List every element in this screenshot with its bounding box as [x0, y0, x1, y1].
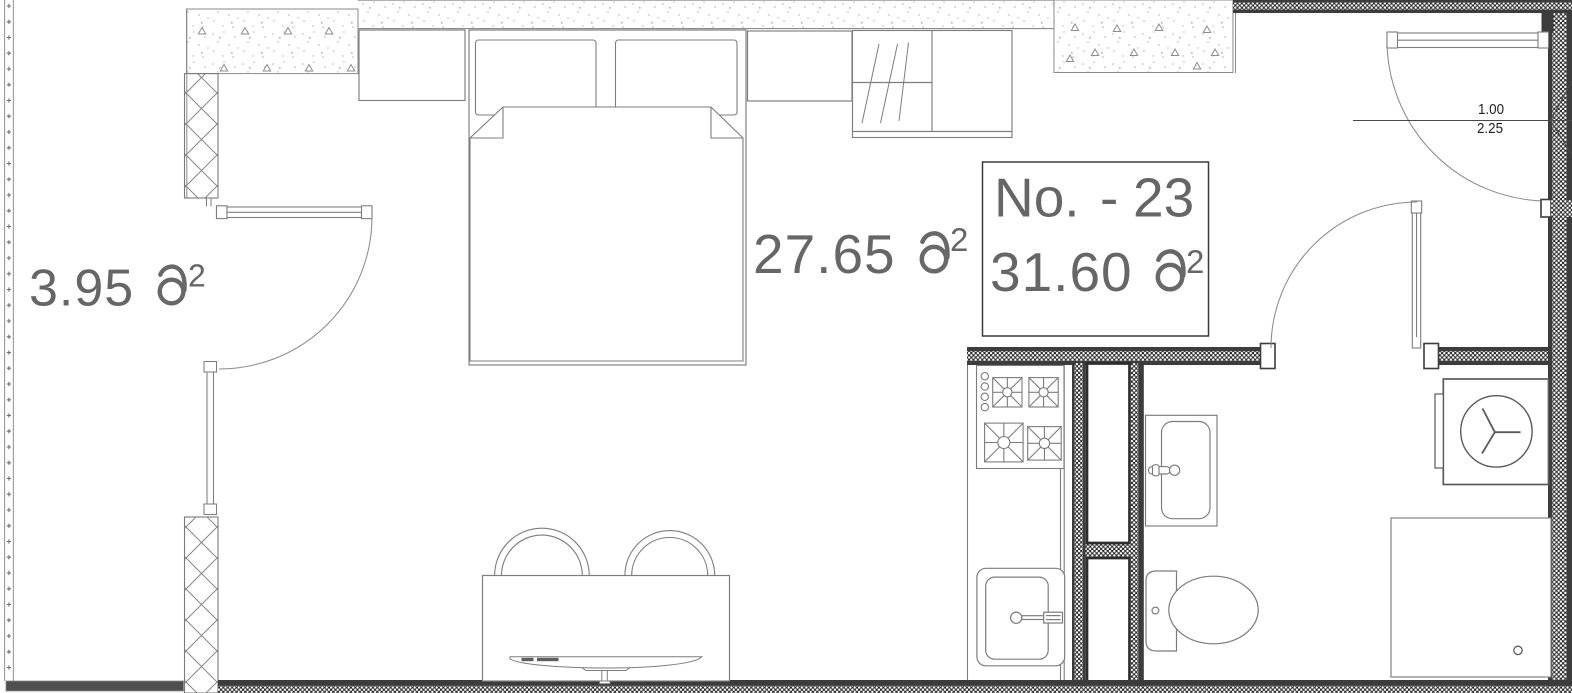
- svg-text:No.: No.: [994, 167, 1080, 229]
- svg-text:-: -: [1100, 167, 1118, 229]
- svg-text:31.60: 31.60: [990, 241, 1133, 303]
- svg-text:2: 2: [950, 221, 968, 258]
- svg-text:2: 2: [1186, 243, 1204, 280]
- svg-text:3.95: 3.95: [29, 260, 134, 318]
- svg-text:23: 23: [1133, 167, 1194, 229]
- svg-text:1.00: 1.00: [1478, 101, 1504, 118]
- svg-text:27.65: 27.65: [753, 223, 896, 285]
- svg-text:2: 2: [188, 258, 206, 294]
- svg-text:2.25: 2.25: [1477, 120, 1503, 137]
